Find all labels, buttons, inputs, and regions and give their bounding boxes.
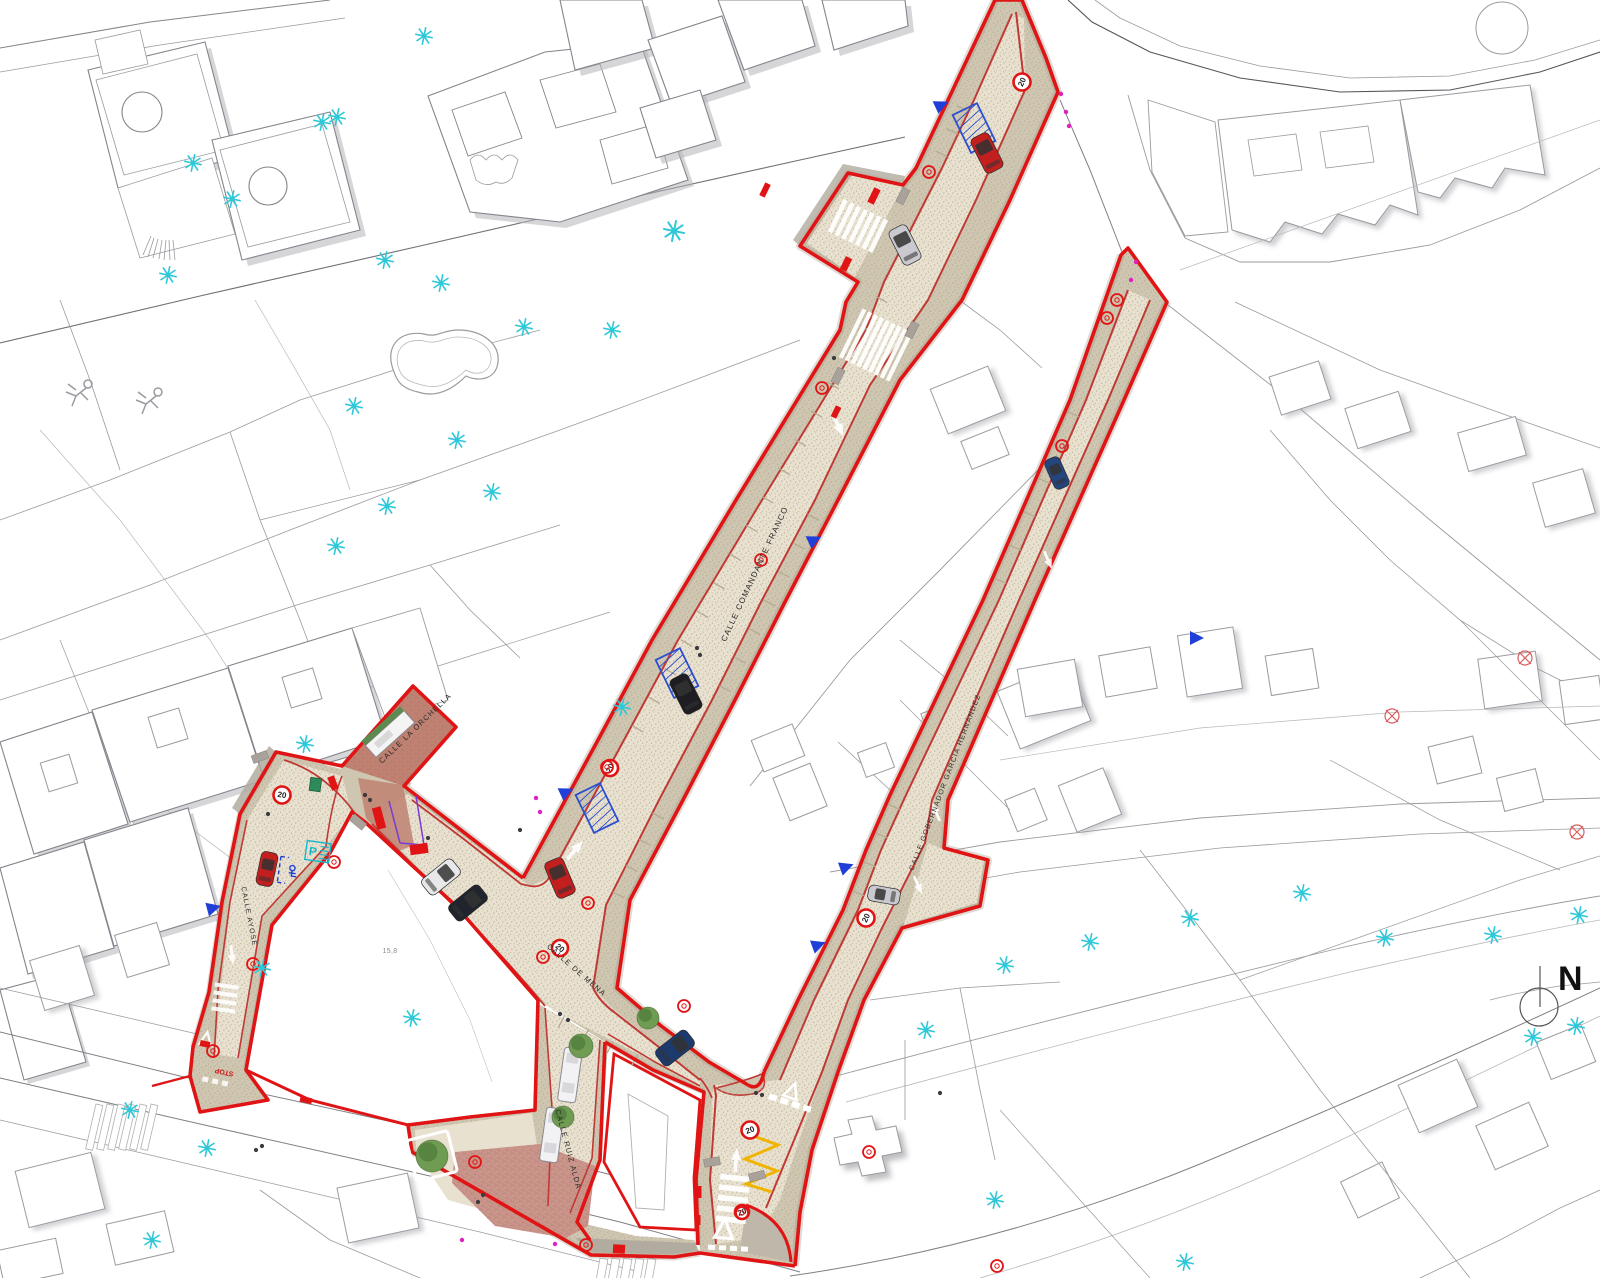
svg-text:N: N — [1558, 960, 1583, 998]
svg-text:15,8: 15,8 — [383, 948, 398, 955]
